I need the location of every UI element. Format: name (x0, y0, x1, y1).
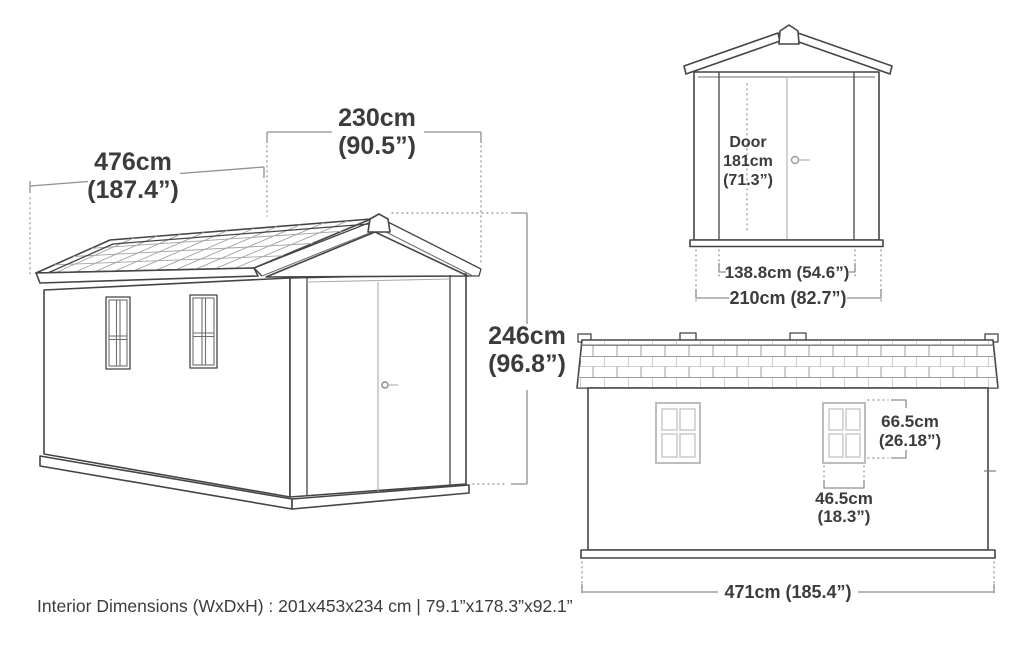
front-apex-cap (779, 25, 799, 44)
dim-overall-width-label: 210cm (82.7”) (729, 288, 846, 308)
interior-dimensions-note: Interior Dimensions (WxDxH) : 201x453x23… (37, 596, 573, 616)
shed-side-view: 66.5cm (26.18”) 46.5cm (18.3”) 471cm (18… (577, 333, 998, 602)
front-view-dimensions: 138.8cm (54.6”) 210cm (82.7”) (696, 250, 881, 308)
roof-apex-cap (368, 214, 390, 232)
diagram-svg: 476cm (187.4”) 230cm (90.5”) 246cm (96.8… (0, 0, 1024, 646)
dim-depth-label-in: (187.4”) (87, 176, 179, 204)
dim-height-label-cm: 246cm (488, 322, 566, 350)
front-roof-right-bar (796, 33, 892, 74)
front-base-plate (690, 240, 883, 247)
shed-front-view: Door 181cm (71.3”) 138.8cm (54.6”) 210cm… (684, 25, 892, 308)
dim-height-label-in: (96.8”) (488, 350, 566, 378)
door-label: Door (729, 134, 766, 151)
door-height-in: (71.3”) (723, 172, 773, 189)
dim-window-width-label-in: (18.3”) (818, 507, 871, 526)
side-base-plate (581, 550, 995, 558)
dim-width-label-in: (90.5”) (338, 132, 416, 160)
dim-window-height-label-in: (26.18”) (879, 431, 941, 450)
dim-length-label: 471cm (185.4”) (724, 582, 851, 602)
side-window-left (656, 403, 700, 463)
shed-dimensions-diagram: 476cm (187.4”) 230cm (90.5”) 246cm (96.8… (0, 0, 1024, 646)
side-roof-bricks (577, 340, 998, 388)
front-roof-left-bar (684, 33, 780, 74)
dim-window-width-label-cm: 46.5cm (815, 489, 873, 508)
door-height-cm: 181cm (723, 153, 773, 170)
dim-depth-label-cm: 476cm (94, 148, 172, 176)
dim-width-label-cm: 230cm (338, 104, 416, 132)
shed-perspective-view: 476cm (187.4”) 230cm (90.5”) 246cm (96.8… (30, 104, 566, 509)
side-window-right (823, 403, 865, 463)
dim-window-height-label-cm: 66.5cm (881, 412, 939, 431)
dim-door-opening-label: 138.8cm (54.6”) (725, 263, 850, 282)
